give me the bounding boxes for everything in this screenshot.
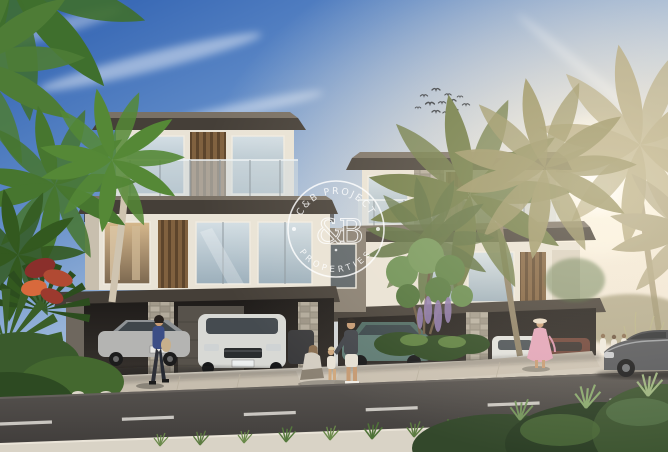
watermark-dot-center [335,249,338,252]
watermark-dot-left [292,227,296,231]
villa-rendering: C&B PROJECT PROPERTIES &B [0,0,668,452]
watermark-dot-right [376,227,380,231]
watermark-monogram: &B [315,212,361,252]
